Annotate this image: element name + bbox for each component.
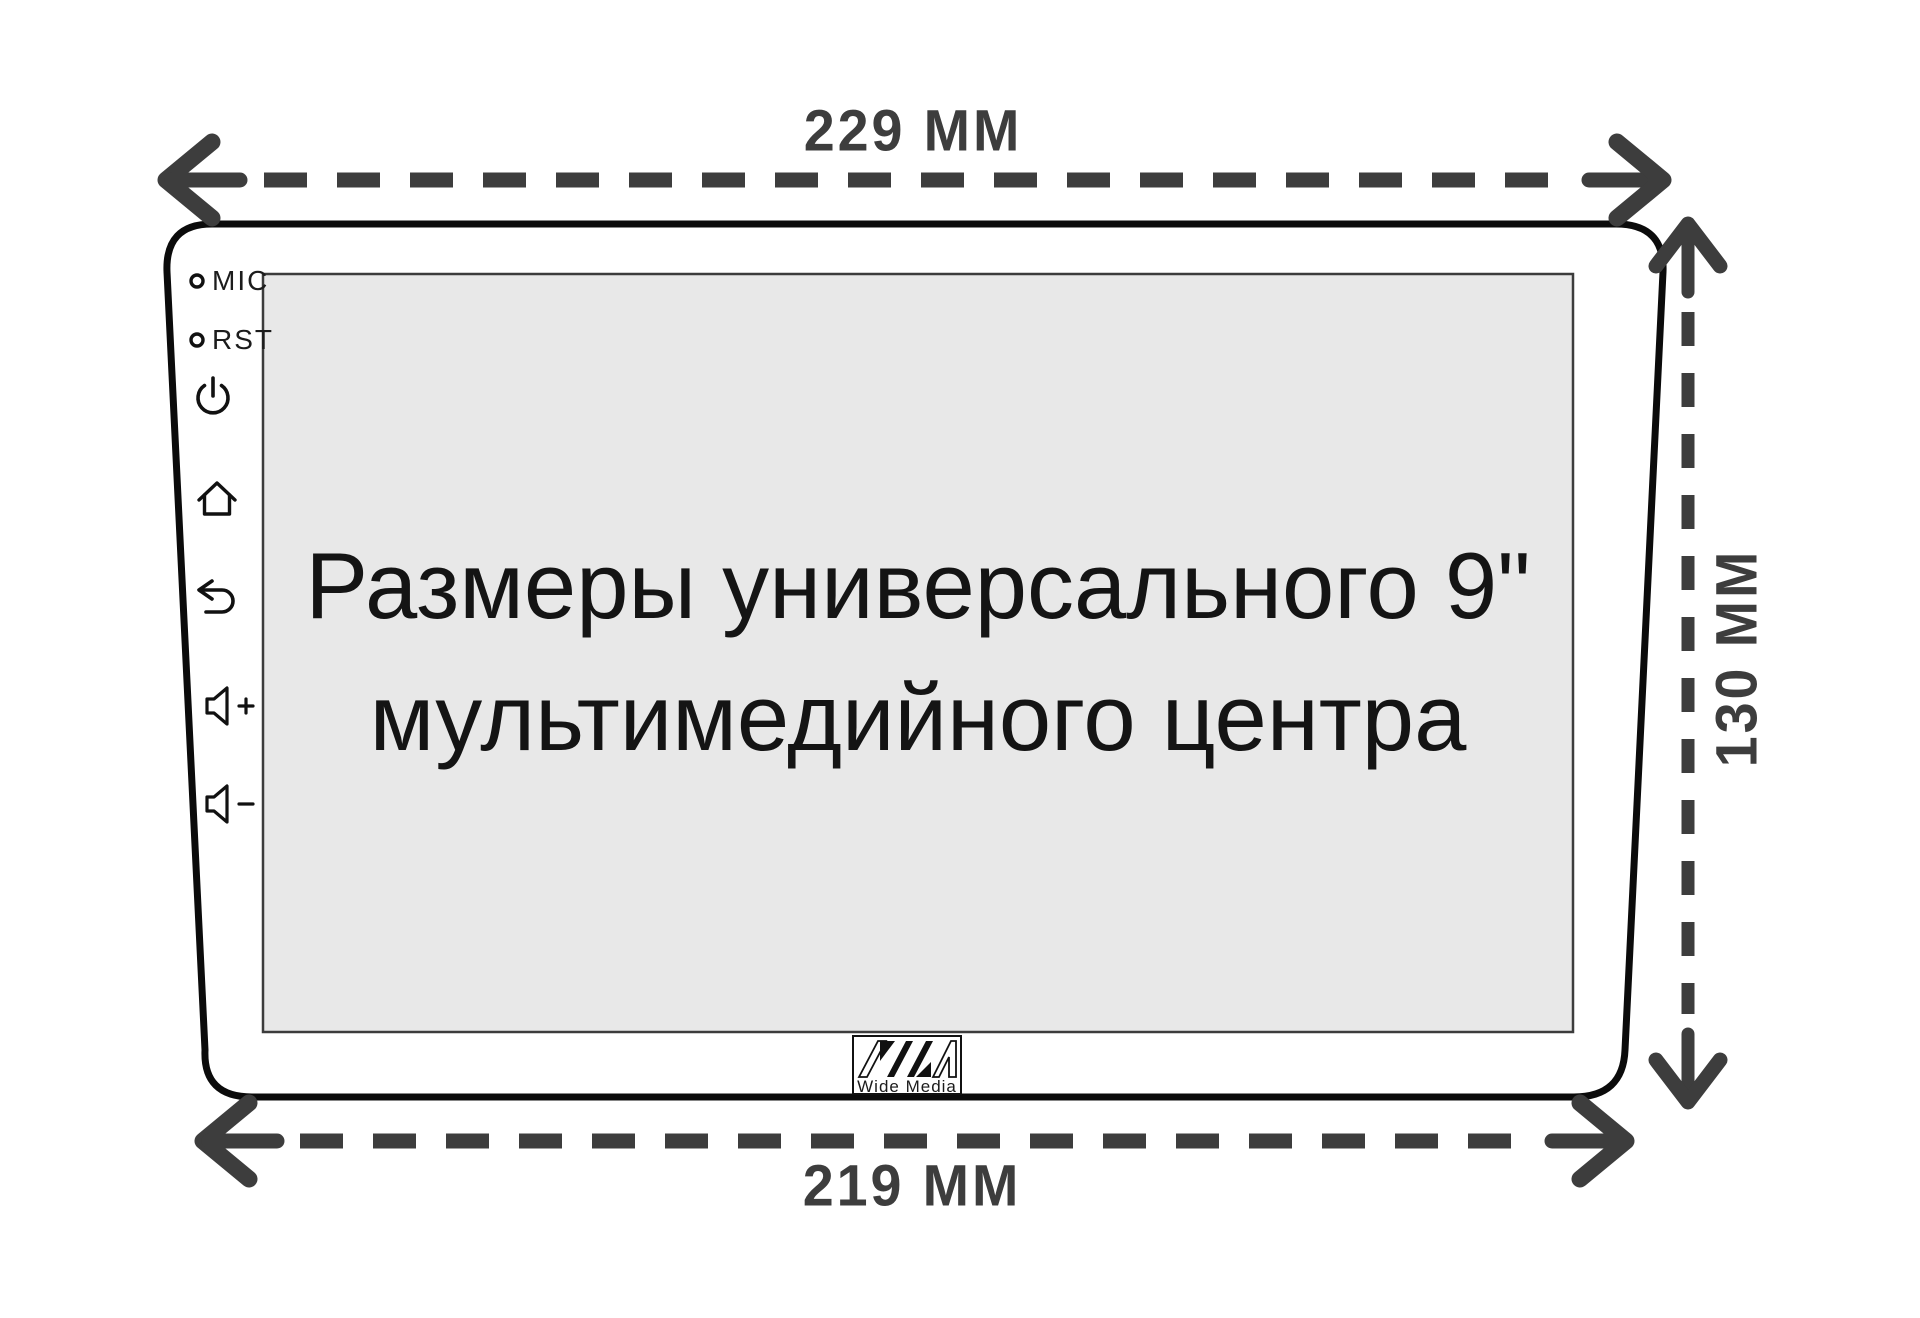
screen-caption-line1: Размеры универсального 9": [305, 520, 1530, 652]
dimension-label-bottom: 219 MM: [803, 1153, 1021, 1220]
screen-caption: Размеры универсального 9" мультимедийног…: [305, 520, 1530, 784]
dimension-label-top: 229 MM: [804, 98, 1022, 165]
diagram-canvas: 229 MM 219 MM 130 MM MIC RST Размеры уни…: [0, 0, 1920, 1318]
screen-caption-line2: мультимедийного центра: [305, 652, 1530, 784]
dimension-label-right: 130 MM: [1704, 549, 1771, 767]
wide-media-logo-text: Wide Media: [857, 1077, 957, 1097]
rst-port-label: RST: [212, 324, 274, 356]
mic-port-label: MIC: [212, 265, 269, 297]
